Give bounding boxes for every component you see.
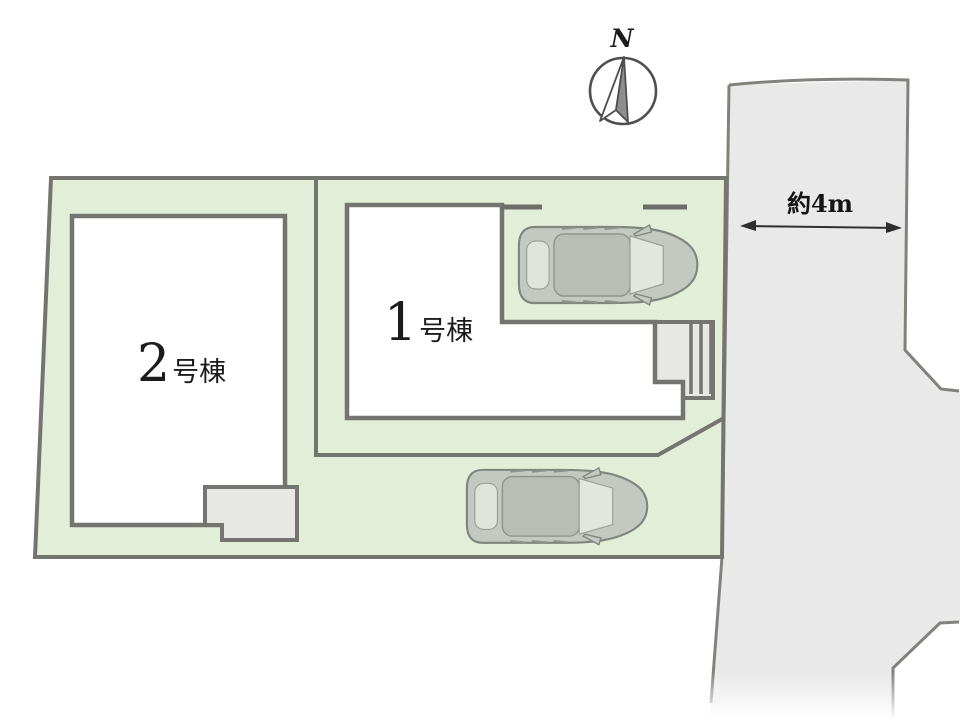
road-surface	[710, 80, 960, 720]
building-2-label: 2 号棟	[137, 338, 226, 390]
car-top-icon	[519, 225, 697, 305]
road-width-label: 約4m	[750, 184, 890, 219]
road	[710, 79, 960, 720]
building-2-number: 2	[137, 338, 170, 390]
road-bottom-fade	[690, 672, 960, 720]
building-2-suffix: 号棟	[172, 359, 226, 386]
compass-icon	[590, 57, 656, 124]
site-plan: N 約4m 1 号棟 2 号棟	[0, 0, 960, 720]
building-1-number: 1	[384, 297, 417, 349]
compass-north-label: N	[602, 24, 642, 53]
car-bottom-icon	[467, 468, 647, 545]
building-1-label: 1 号棟	[384, 297, 473, 349]
building-1-suffix: 号棟	[419, 318, 473, 345]
